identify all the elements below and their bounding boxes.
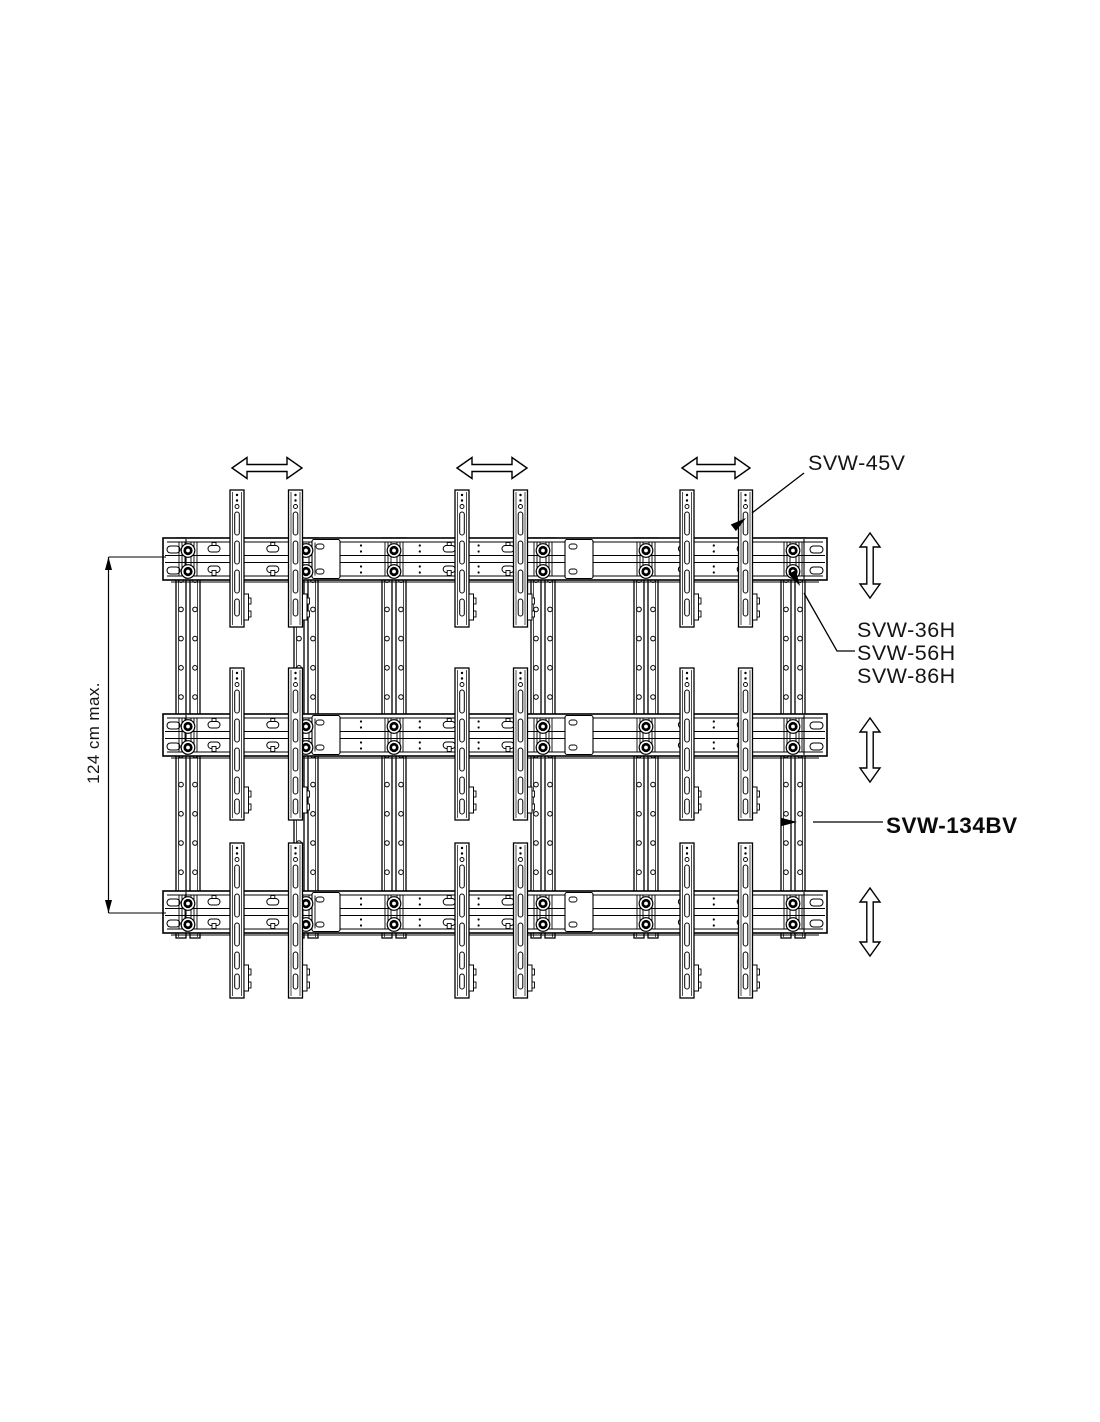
label-svw-86h: SVW-86H <box>857 664 956 688</box>
horizontal-rail <box>163 538 827 582</box>
horizontal-adjust-arrow-icon <box>232 458 302 479</box>
dimension-arrowhead-down-icon <box>105 900 112 913</box>
dimension-label: 124 cm max. <box>84 682 103 784</box>
horizontal-adjust-arrow-icon <box>682 458 750 479</box>
label-svw-134bv: SVW-134BV <box>886 813 1018 838</box>
horizontal-rail <box>163 891 827 935</box>
vertical-adjust-arrow-icon <box>860 888 880 956</box>
vertical-adjust-arrow-icon <box>860 533 880 598</box>
video-wall-mount-diagram: 124 cm max. SVW-45V SVW-36H SVW-56H SVW-… <box>0 0 1100 1422</box>
horizontal-adjust-arrow-icon <box>457 458 527 479</box>
vertical-adjust-arrow-icon <box>860 718 880 782</box>
diagram-canvas: 124 cm max. SVW-45V SVW-36H SVW-56H SVW-… <box>0 0 1100 1422</box>
horizontal-rails-group <box>163 538 827 935</box>
label-svw-56h: SVW-56H <box>857 641 956 665</box>
dimension-group: 124 cm max. <box>84 557 166 913</box>
label-svw-36h: SVW-36H <box>857 618 956 642</box>
leader-line <box>804 593 855 651</box>
label-svw-45v: SVW-45V <box>808 451 906 475</box>
horizontal-rail <box>163 714 827 758</box>
dimension-arrowhead-up-icon <box>105 557 112 570</box>
